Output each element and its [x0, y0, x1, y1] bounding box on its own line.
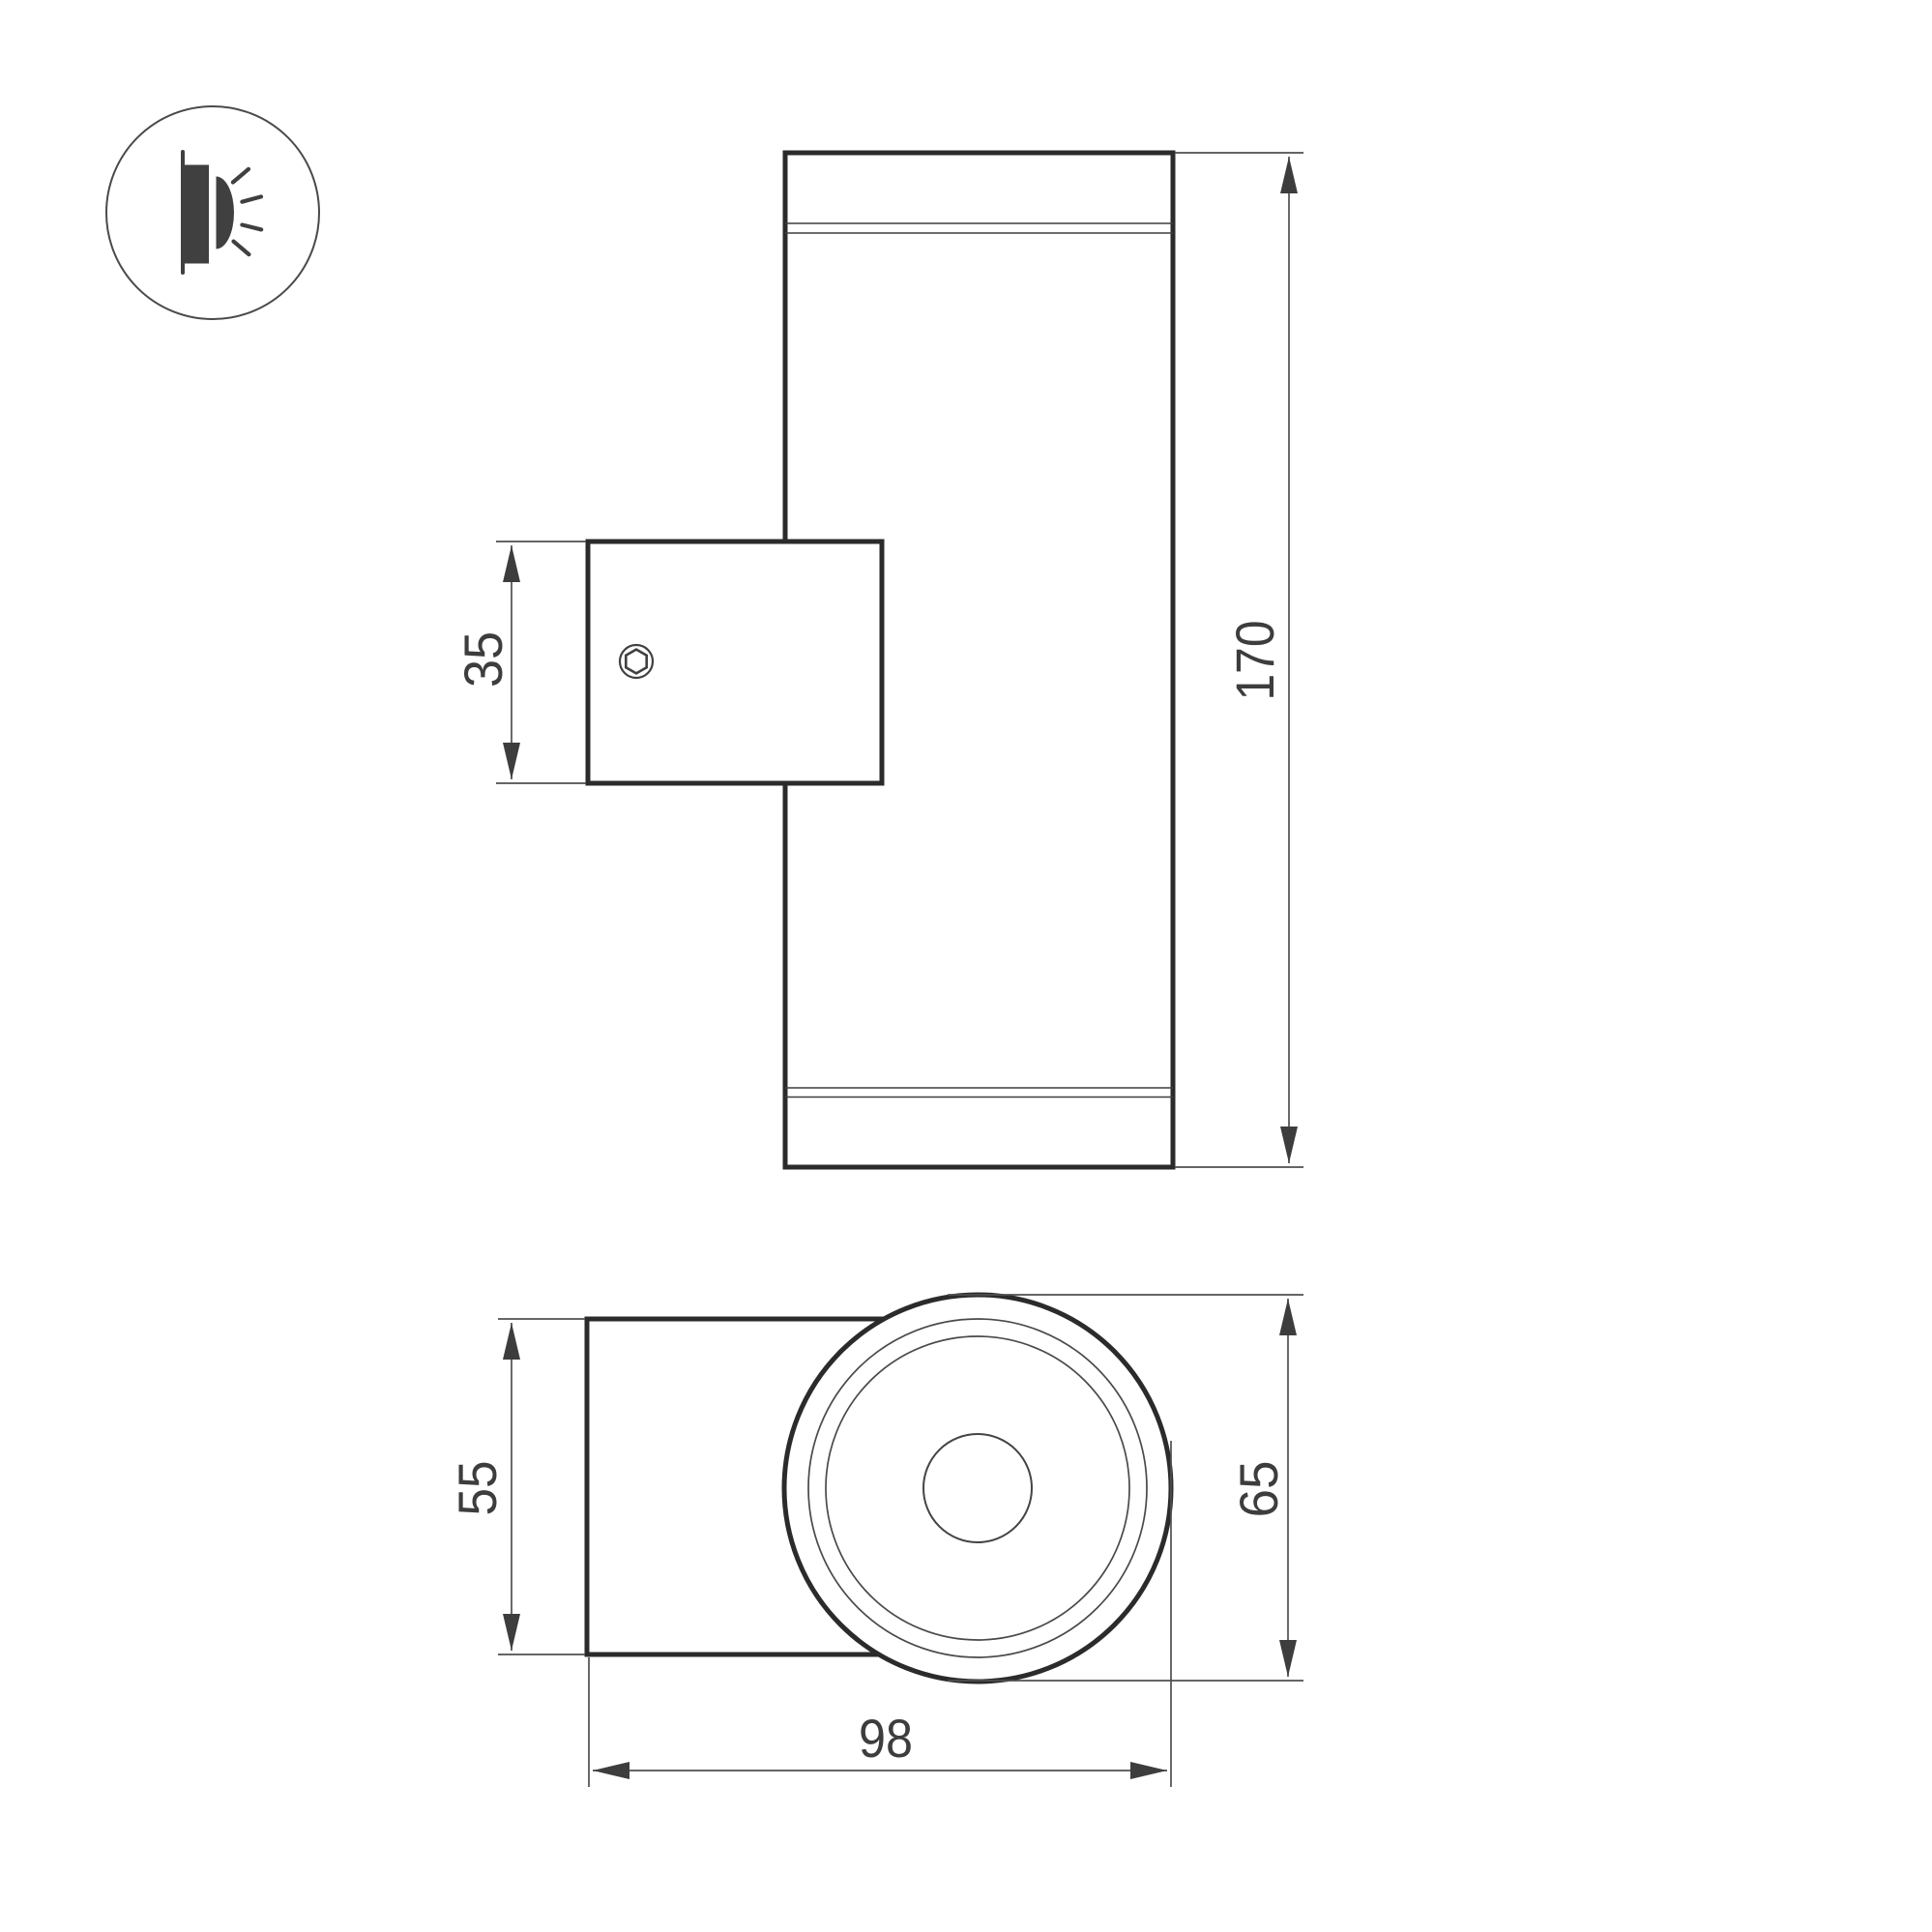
svg-text:170: 170	[1224, 621, 1285, 701]
svg-text:98: 98	[859, 1708, 913, 1769]
svg-text:65: 65	[1228, 1461, 1289, 1518]
svg-text:55: 55	[447, 1461, 508, 1516]
svg-text:35: 35	[453, 631, 513, 688]
